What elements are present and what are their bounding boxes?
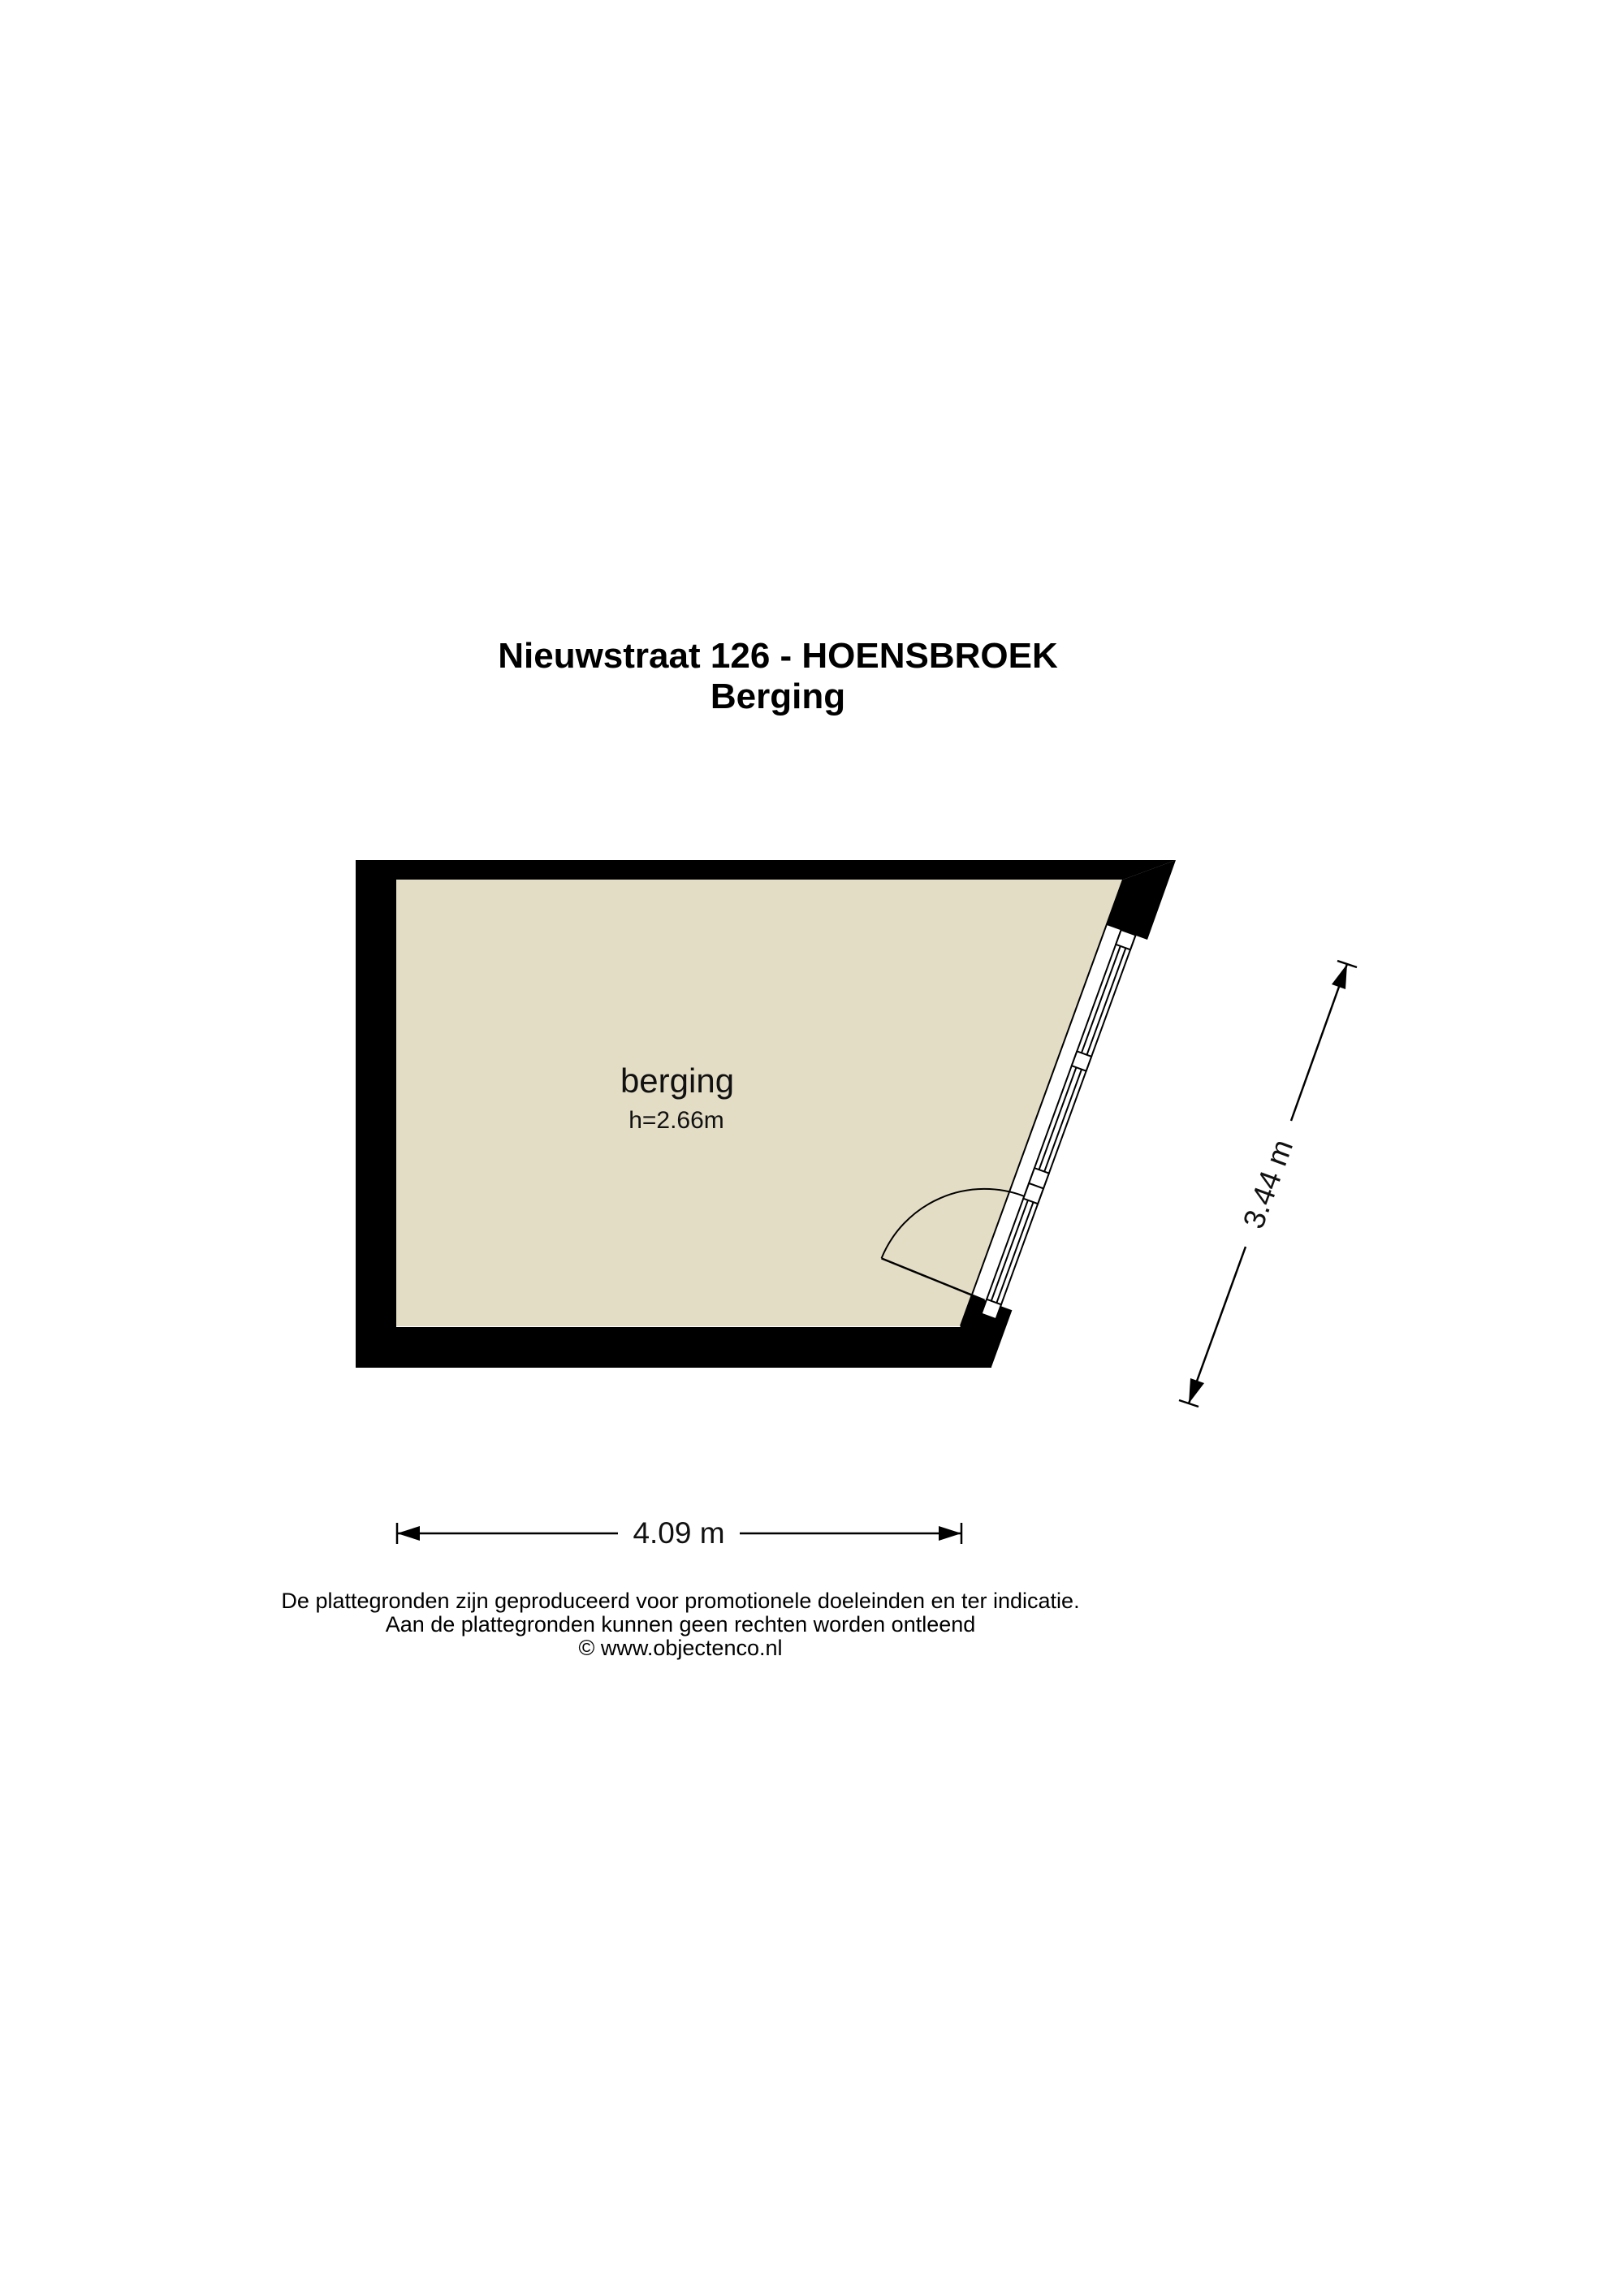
dimension-depth-line-upper <box>1291 964 1347 1121</box>
wall-bottom <box>356 1327 991 1368</box>
disclaimer: De plattegronden zijn geproduceerd voor … <box>281 1589 1079 1660</box>
dimension-width: 4.09 m <box>397 1516 961 1550</box>
room-label: berging <box>620 1062 734 1100</box>
window-mullion <box>1072 1051 1091 1070</box>
dimension-depth-line-lower <box>1189 1247 1246 1403</box>
dimension-depth-arrow-top <box>1332 964 1347 989</box>
room-ceiling-height-label: h=2.66m <box>628 1107 724 1134</box>
floorplan-page: Nieuwstraat 126 - HOENSBROEK Berging <box>0 0 1624 2296</box>
dimension-width-label: 4.09 m <box>633 1516 724 1550</box>
disclaimer-line-1: De plattegronden zijn geproduceerd voor … <box>281 1589 1079 1613</box>
room-floor <box>396 880 1123 1326</box>
dimension-depth-arrow-bottom <box>1189 1378 1204 1403</box>
dimension-depth: 3.44 m <box>1179 961 1357 1407</box>
dimension-depth-label: 3.44 m <box>1237 1135 1299 1233</box>
disclaimer-line-2: Aan de plattegronden kunnen geen rechten… <box>281 1613 1079 1637</box>
wall-left <box>356 860 396 1367</box>
dimension-width-arrow-left <box>397 1526 420 1541</box>
wall-top <box>356 860 1176 880</box>
disclaimer-copyright: © www.objectenco.nl <box>281 1637 1079 1660</box>
dimension-width-arrow-right <box>939 1526 961 1541</box>
floor-plan-drawing: 4.09 m 3.44 m berging h=2.66m <box>0 0 1624 2296</box>
